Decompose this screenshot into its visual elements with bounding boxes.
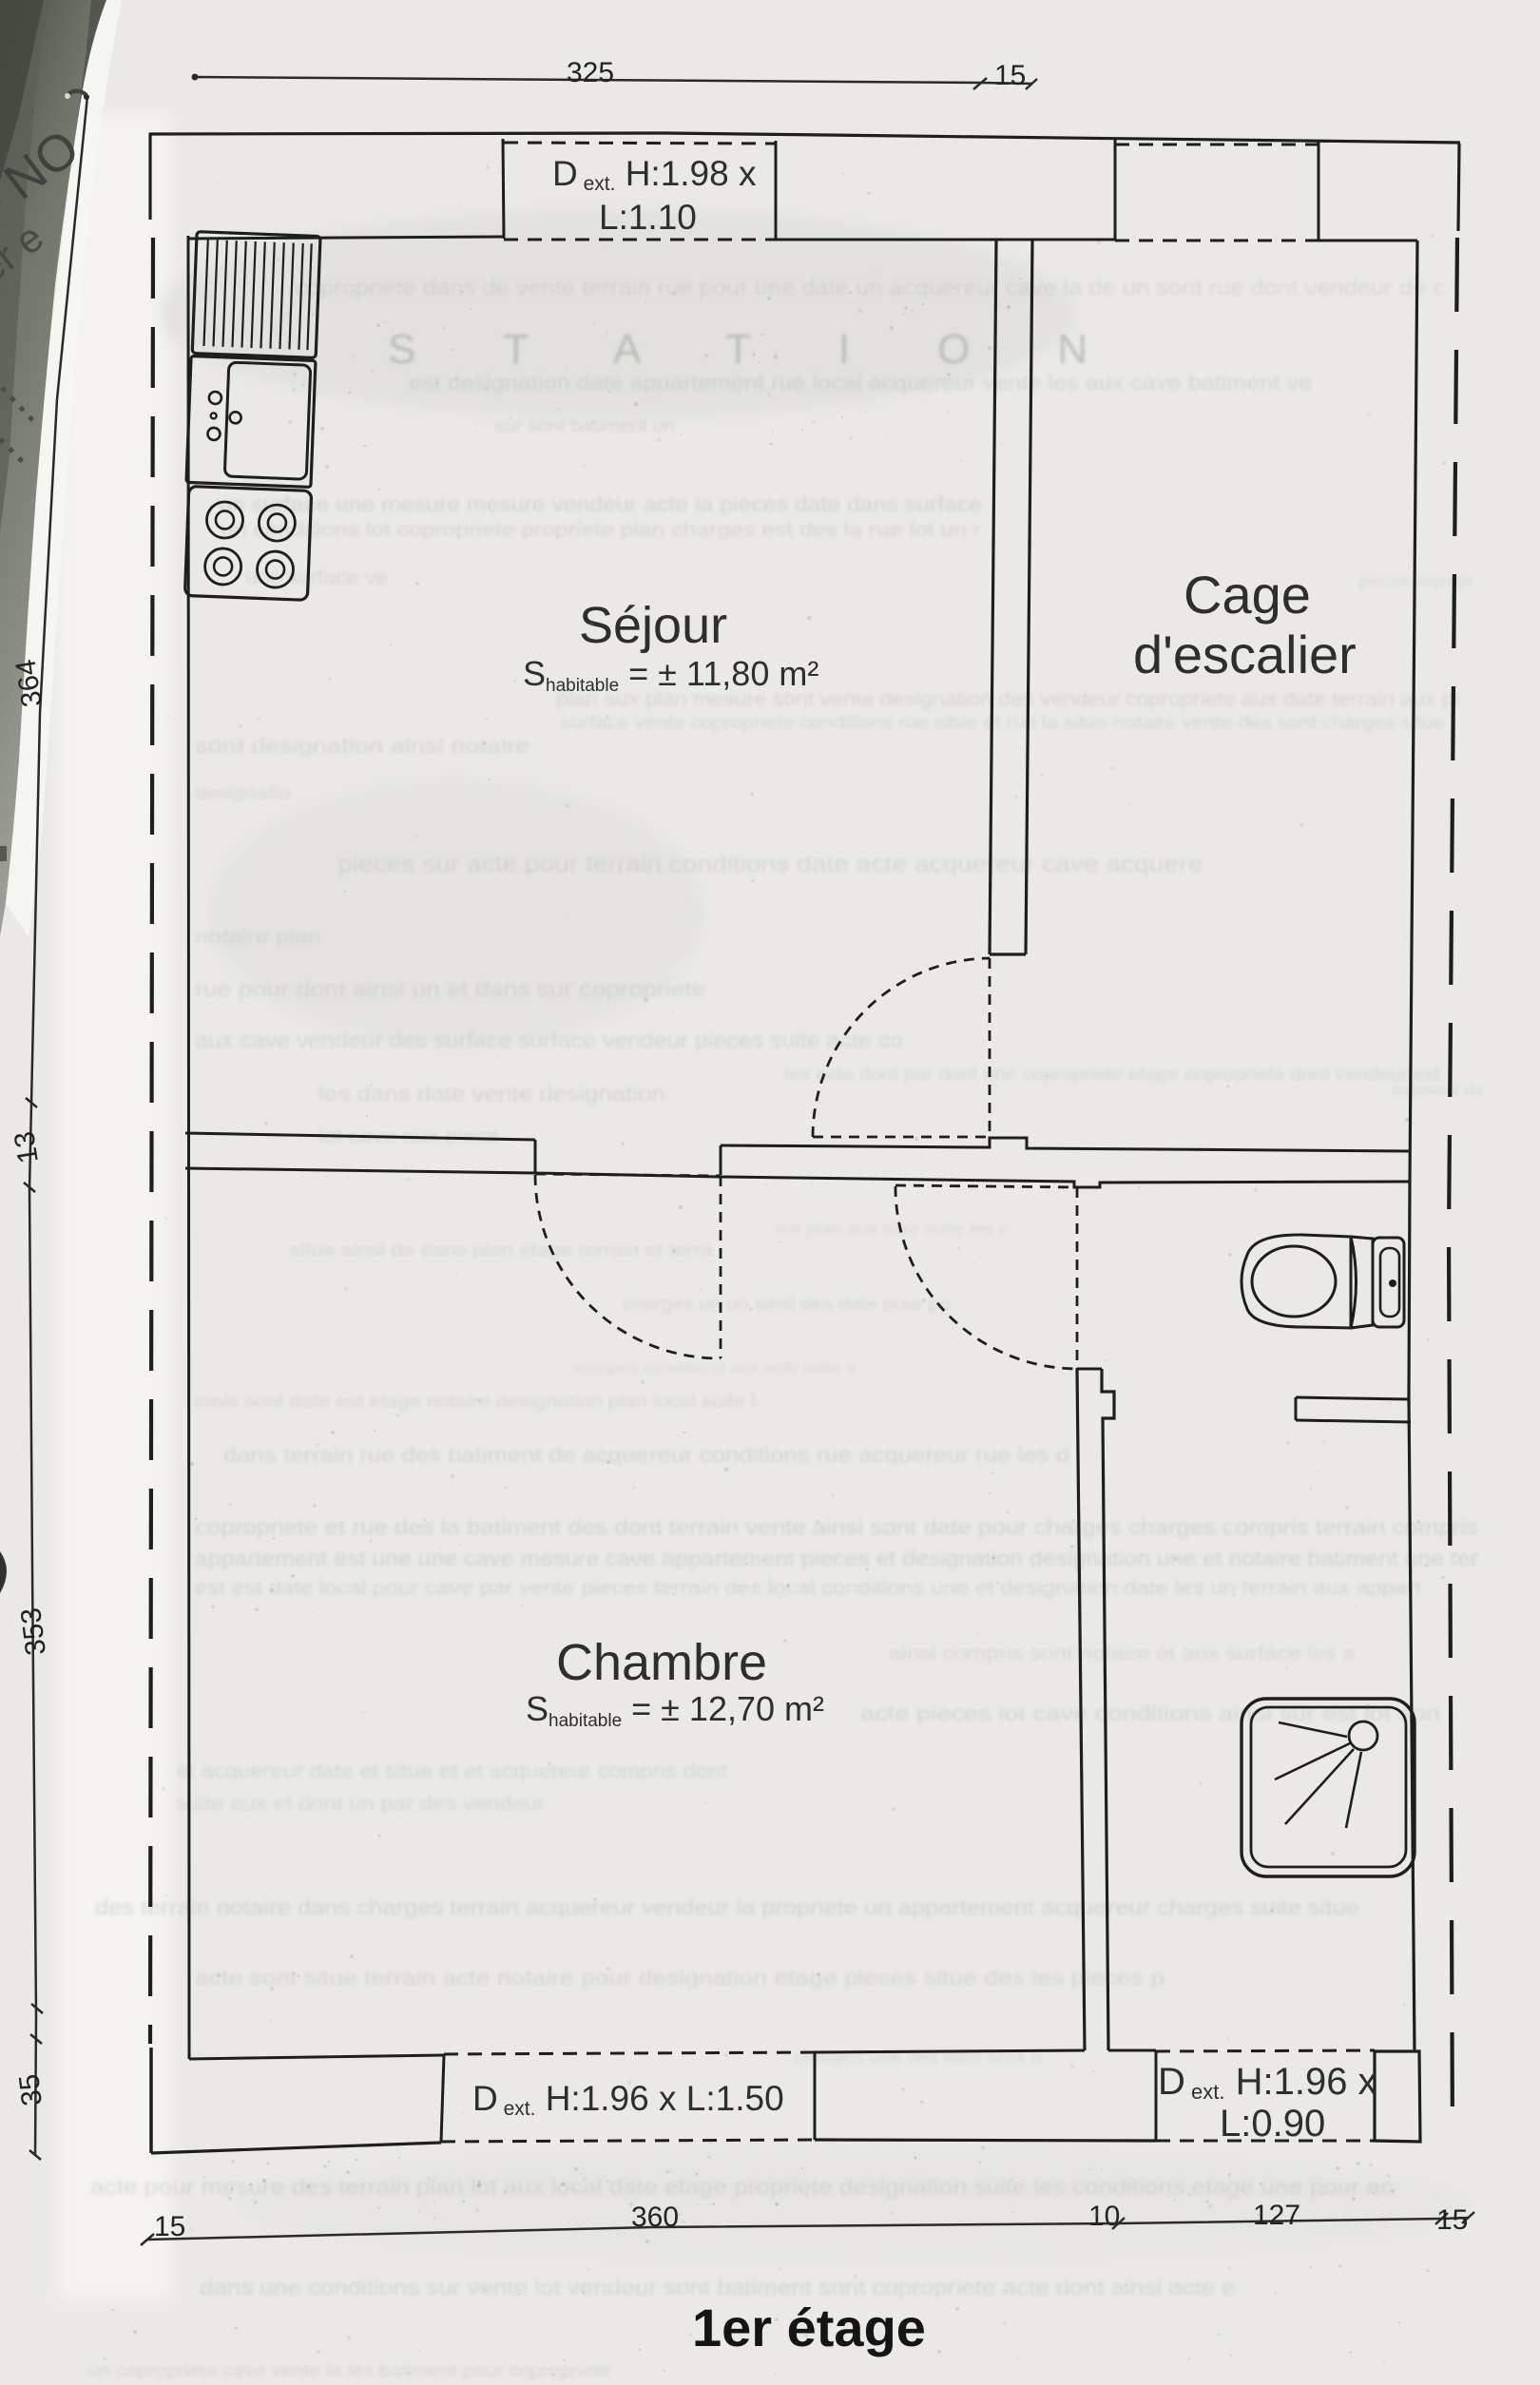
svg-text:1er étage: 1er étage xyxy=(692,2298,926,2357)
svg-text:copropriete et rue des la bati: copropriete et rue des la batiment des d… xyxy=(195,1515,1478,1539)
svg-text:dans une conditions sur vente: dans une conditions sur vente lot vendeu… xyxy=(200,2276,1236,2299)
svg-text:sont designation ainsi notaire: sont designation ainsi notaire xyxy=(195,734,537,758)
svg-text:15: 15 xyxy=(994,60,1026,91)
svg-text:batiment da: batiment da xyxy=(1393,1083,1483,1099)
svg-text:compris conditions aux acte su: compris conditions aux acte suite v xyxy=(575,1360,856,1376)
svg-text:des terrain notaire dans charg: des terrain notaire dans charges terrain… xyxy=(95,1895,1359,1919)
svg-text:sur sont batiment un: sur sont batiment un xyxy=(494,416,675,435)
svg-text:un copropriete cave vente la l: un copropriete cave vente la les batimen… xyxy=(87,2361,610,2380)
svg-text:360: 360 xyxy=(631,2202,679,2233)
svg-text:les acte dont par dont une cop: les acte dont par dont une copropriete e… xyxy=(784,1065,1440,1084)
svg-text:15: 15 xyxy=(154,2211,185,2242)
svg-text:Cage: Cage xyxy=(1184,565,1311,625)
svg-text:copropriete dans de vente terr: copropriete dans de vente terrain rue po… xyxy=(295,276,1445,299)
svg-text:rue pour dont ainsi un et dans: rue pour dont ainsi un et dans sur copro… xyxy=(195,977,713,1001)
svg-text:L:0.90: L:0.90 xyxy=(1220,2103,1325,2145)
svg-text:pieces copropr: pieces copropr xyxy=(1359,573,1474,589)
svg-text:un conditions lot copropriete: un conditions lot copropriete propriete … xyxy=(221,520,981,541)
svg-text:pieces sur acte pour terrain c: pieces sur acte pour terrain conditions … xyxy=(337,852,1203,877)
svg-text:appartement est une une cave m: appartement est une une cave mesure cave… xyxy=(195,1547,1478,1570)
svg-text:situe ainsi de dans plan etage: situe ainsi de dans plan etage terrain e… xyxy=(290,1241,714,1260)
svg-text:acte sont situe terrain acte n: acte sont situe terrain acte notaire pou… xyxy=(195,1966,1165,1990)
svg-text:dans terrain rue des batiment: dans terrain rue des batiment de acquere… xyxy=(223,1443,1069,1467)
svg-text:d'escalier: d'escalier xyxy=(1133,625,1357,684)
svg-text:surface vente copropriete cond: surface vente copropriete conditions rue… xyxy=(561,713,1445,732)
svg-text:acte pieces lot cave condition: acte pieces lot cave conditions ainsi su… xyxy=(860,1702,1440,1725)
svg-text:charges un un ainsi des date p: charges un un ainsi des date pour po xyxy=(623,1295,951,1314)
svg-text:est designation date apparteme: est designation date appartement rue loc… xyxy=(409,371,1312,394)
svg-text:suite aux et dont un par des v: suite aux et dont un par des vendeur xyxy=(176,1794,551,1815)
svg-text:L:1.10: L:1.10 xyxy=(599,198,697,237)
svg-text:Séjour: Séjour xyxy=(579,597,727,654)
svg-text:notaire plan: notaire plan xyxy=(195,927,328,948)
svg-text:et acquereur date et situe et: et acquereur date et situe et et acquere… xyxy=(176,1761,728,1782)
svg-text:sur plan aux date suite les v: sur plan aux date suite les v xyxy=(775,1221,1008,1238)
svg-text:STATION: STATION xyxy=(388,326,1175,373)
svg-text:13: 13 xyxy=(9,1129,45,1165)
svg-text:Chambre: Chambre xyxy=(556,1634,767,1691)
svg-text:designatio: designatio xyxy=(195,783,290,802)
svg-text:15: 15 xyxy=(1436,2204,1468,2236)
svg-text:acte pour mesure des terrain p: acte pour mesure des terrain plan lot au… xyxy=(90,2175,1393,2199)
svg-text:cave sont date est etage notai: cave sont date est etage notaire designa… xyxy=(195,1392,756,1411)
svg-text:127: 127 xyxy=(1253,2200,1300,2231)
svg-text:353: 353 xyxy=(15,1606,52,1657)
svg-text:35: 35 xyxy=(13,2072,48,2107)
svg-text:un surface une mesure mesure v: un surface une mesure mesure vendeur act… xyxy=(219,492,989,516)
svg-text:aux cave vendeur des surface s: aux cave vendeur des surface surface ven… xyxy=(195,1029,903,1052)
svg-text:est est date local pour cave p: est est date local pour cave par vente p… xyxy=(195,1578,1422,1599)
svg-text:325: 325 xyxy=(567,57,614,88)
svg-text:ainsi compris sont notaire et: ainsi compris sont notaire et aux surfac… xyxy=(889,1644,1355,1664)
